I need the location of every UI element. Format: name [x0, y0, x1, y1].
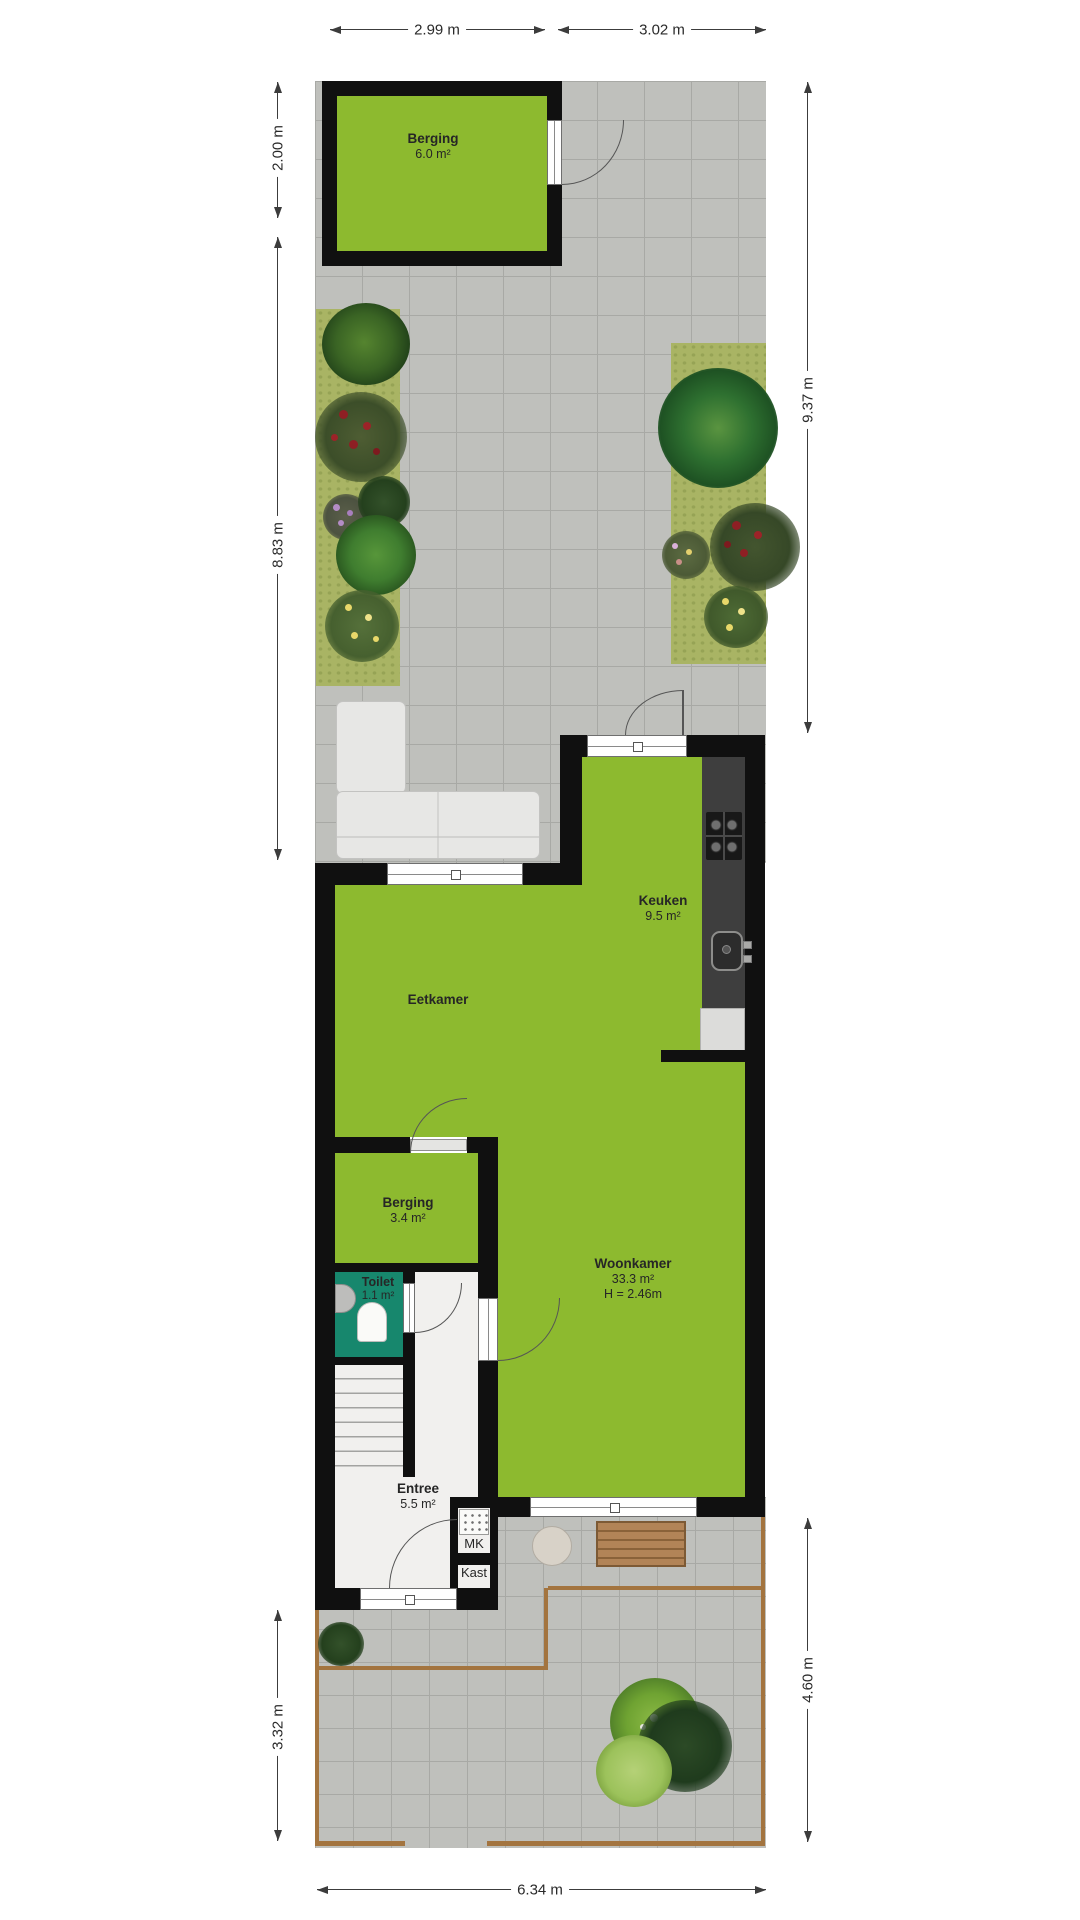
- arrow-left-icon: [558, 26, 569, 34]
- shed-floor: [337, 96, 547, 251]
- dim-right-bottom-label: 4.60 m: [799, 1651, 818, 1709]
- living-window: [530, 1497, 697, 1517]
- dining-window: [387, 863, 523, 885]
- sofa-chaise: [336, 701, 406, 794]
- path-border-right-vertical: [761, 1517, 765, 1843]
- shed-door-opening: [547, 120, 562, 185]
- garden-bench: [596, 1521, 686, 1567]
- living-door-opening: [478, 1298, 498, 1361]
- storage-floor: [335, 1153, 478, 1263]
- dim-left-mid-label: 8.83 m: [269, 516, 288, 574]
- faucet2-icon: [743, 955, 752, 963]
- arrow-left-icon: [330, 26, 341, 34]
- plant-rosebush-icon: [315, 392, 407, 482]
- stairs: [335, 1365, 403, 1477]
- dining-floor: [335, 885, 745, 1137]
- wall-left: [315, 885, 335, 1610]
- arrow-down-icon: [804, 1831, 812, 1842]
- dim-right-top-label: 9.37 m: [799, 371, 818, 429]
- plant-flower-mix-icon: [662, 531, 710, 579]
- meter-panel: [459, 1509, 489, 1535]
- wall-storage-top-a: [335, 1137, 410, 1153]
- gas-hob-icon: [706, 812, 742, 860]
- arrow-right-icon: [755, 26, 766, 34]
- plant-big-palm-icon: [658, 368, 778, 488]
- kitchen-backdoor-opening: [587, 735, 687, 757]
- wall-toilet-right-a: [403, 1272, 415, 1283]
- arrow-up-icon: [804, 82, 812, 93]
- arrow-right-icon: [755, 1886, 766, 1894]
- plant-leafy-icon: [322, 303, 410, 385]
- dim-top-right-label: 3.02 m: [633, 21, 691, 40]
- sink-drain-icon: [722, 945, 731, 954]
- wall-storage-top-b: [467, 1137, 478, 1153]
- dim-bottom-label: 6.34 m: [511, 1881, 569, 1900]
- plant-yellow-bush-icon: [704, 586, 768, 648]
- arrow-up-icon: [804, 1518, 812, 1529]
- path-border-bottom-right: [487, 1841, 765, 1846]
- arrow-down-icon: [274, 1830, 282, 1841]
- toilet-door-opening: [403, 1283, 415, 1333]
- sofa-seat: [336, 791, 540, 859]
- dim-left-bottom-label: 3.32 m: [269, 1698, 288, 1756]
- dim-top-left-label: 2.99 m: [408, 21, 466, 40]
- garden-table: [532, 1526, 572, 1566]
- plant-green-palm-icon: [336, 515, 416, 595]
- arrow-down-icon: [274, 849, 282, 860]
- arrow-right-icon: [534, 26, 545, 34]
- plant-yellow-flowers-icon: [325, 590, 399, 662]
- front-door-opening: [360, 1588, 457, 1610]
- path-border-door-vertical: [544, 1588, 548, 1668]
- faucet-icon: [743, 941, 752, 949]
- arrow-up-icon: [274, 82, 282, 93]
- wall-living-entry-b: [478, 1361, 498, 1497]
- wall-living-entry-a: [478, 1137, 498, 1298]
- arrow-down-icon: [804, 722, 812, 733]
- arrow-up-icon: [274, 237, 282, 248]
- closet-cell: [458, 1565, 490, 1588]
- dim-left-top-label: 2.00 m: [269, 119, 288, 177]
- wall-storage-toilet: [335, 1263, 478, 1272]
- plant-rosebush2-icon: [710, 503, 800, 591]
- wall-stairs-right: [403, 1363, 415, 1477]
- path-border-h1: [318, 1666, 548, 1670]
- plant-front-small-icon: [318, 1622, 364, 1666]
- sink-icon: [711, 931, 743, 971]
- path-border-h2: [548, 1586, 764, 1590]
- wall-kitchen-stub: [661, 1050, 745, 1062]
- arrow-up-icon: [274, 1610, 282, 1621]
- toilet-icon: [357, 1302, 387, 1342]
- path-border-bottom-left: [315, 1841, 405, 1846]
- kitchen-backdoor-leaf: [682, 690, 684, 735]
- fridge: [700, 1008, 745, 1053]
- wall-right: [745, 735, 765, 1517]
- floorplan: Berging 6.0 m²: [0, 0, 1080, 1920]
- plant-front-light-bush-icon: [596, 1735, 672, 1807]
- arrow-left-icon: [317, 1886, 328, 1894]
- arrow-down-icon: [274, 207, 282, 218]
